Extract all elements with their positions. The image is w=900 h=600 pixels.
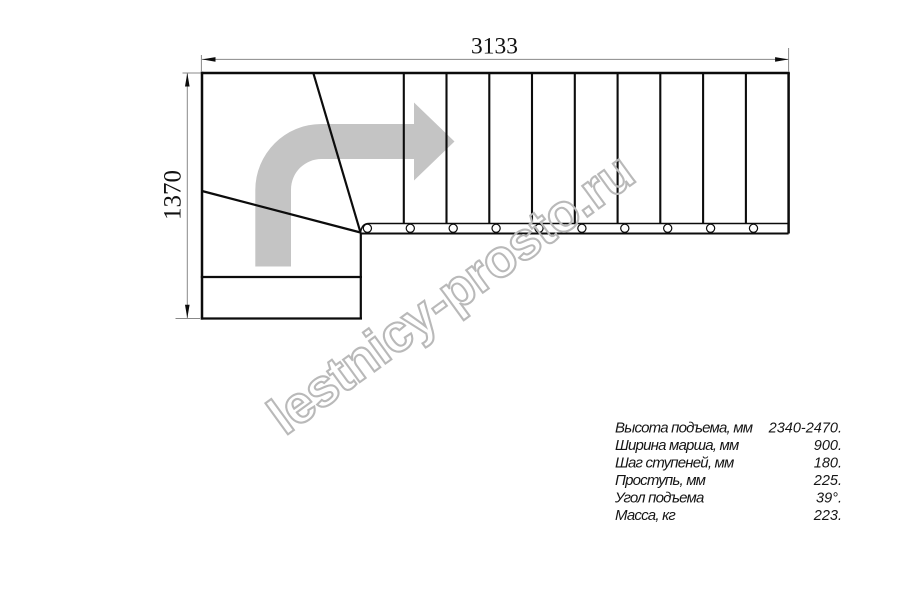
- svg-text:Шаг ступеней, мм: Шаг ступеней, мм: [615, 454, 734, 471]
- svg-text:Высота подъема, мм: Высота подъема, мм: [615, 419, 753, 436]
- svg-text:Ширина марша, мм: Ширина марша, мм: [615, 437, 739, 454]
- svg-text:Масса, кг: Масса, кг: [615, 507, 676, 524]
- svg-text:180.: 180.: [814, 455, 842, 471]
- svg-text:Угол подъема: Угол подъема: [614, 489, 704, 506]
- svg-text:3133: 3133: [471, 34, 518, 60]
- svg-text:225.: 225.: [813, 473, 842, 489]
- svg-text:900.: 900.: [814, 438, 842, 454]
- svg-text:39°.: 39°.: [816, 490, 842, 506]
- svg-text:1370: 1370: [159, 170, 186, 220]
- svg-text:2340-2470.: 2340-2470.: [768, 420, 842, 436]
- svg-text:Проступь, мм: Проступь, мм: [615, 472, 706, 489]
- svg-text:223.: 223.: [813, 508, 842, 524]
